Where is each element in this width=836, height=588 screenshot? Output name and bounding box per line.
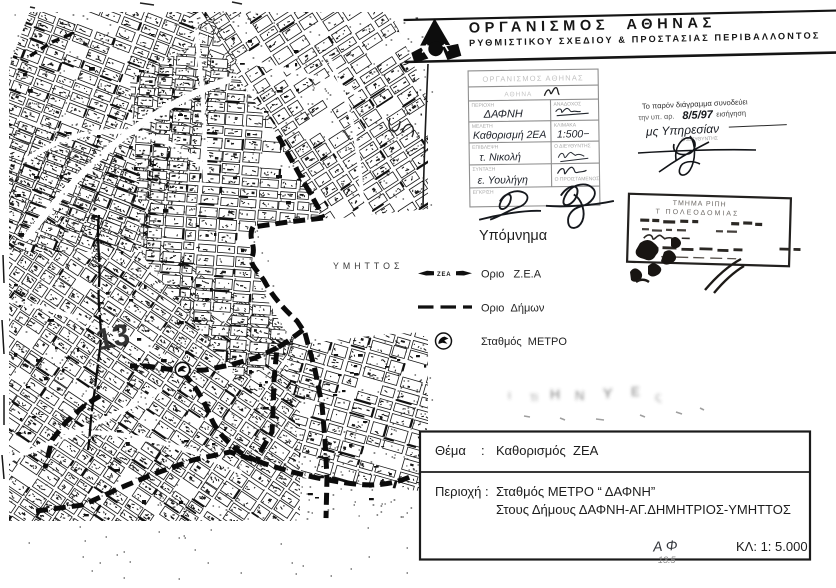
svg-text:ΟΡΓΑΝΙΣΜΟΣ ΑΘΗΝΑΣ: ΟΡΓΑΝΙΣΜΟΣ ΑΘΗΝΑΣ: [482, 73, 583, 83]
svg-text:13: 13: [93, 318, 133, 357]
svg-text:Καθορισμός ΖΕΑ: Καθορισμός ΖΕΑ: [496, 443, 599, 458]
svg-text:Ν: Ν: [575, 388, 584, 403]
svg-text:την υπ. αρ.: την υπ. αρ.: [638, 112, 674, 123]
svg-text:Υπόμνημα: Υπόμνημα: [479, 228, 547, 244]
svg-text:ΥΜΗΤΤΟΣ: ΥΜΗΤΤΟΣ: [333, 261, 403, 271]
svg-text:Σταθμός ΜΕΤΡΟ: Σταθμός ΜΕΤΡΟ: [481, 336, 567, 348]
svg-text:ΕΓΚΡΙΣΗ: ΕΓΚΡΙΣΗ: [473, 190, 494, 196]
svg-text:Οριο Ζ.Ε.Α: Οριο Ζ.Ε.Α: [481, 269, 542, 281]
svg-text:ς: ς: [655, 389, 661, 404]
svg-text:ΕΠΙΒΛΕΨΗ: ΕΠΙΒΛΕΨΗ: [472, 144, 499, 150]
svg-text:ΣΥΝΤΑΞΗ: ΣΥΝΤΑΞΗ: [472, 167, 495, 173]
svg-text:ΔΑΦΝΗ: ΔΑΦΝΗ: [483, 108, 523, 121]
svg-text:ΚΛ: 1: 5.000: ΚΛ: 1: 5.000: [736, 539, 808, 554]
svg-text:ε. Υουλήγη: ε. Υουλήγη: [478, 174, 529, 187]
svg-text:Υ: Υ: [603, 385, 613, 401]
svg-text:Θέμα: Θέμα: [435, 443, 466, 458]
svg-text:Η: Η: [550, 386, 560, 402]
svg-text:ΤΜΗΜΑ ΡΙΠΗ: ΤΜΗΜΑ ΡΙΠΗ: [673, 200, 727, 209]
svg-text:τι: τι: [530, 389, 538, 404]
svg-text:Καθορισμή 2ΕΑ: Καθορισμή 2ΕΑ: [473, 129, 547, 142]
svg-text:Ο ΔΙΕΥΘΥΝΤΗΣ: Ο ΔΙΕΥΘΥΝΤΗΣ: [554, 143, 591, 150]
svg-text:τ. Νικολή: τ. Νικολή: [479, 151, 521, 164]
svg-text:εισήγηση: εισήγηση: [716, 108, 746, 118]
svg-text:Οριο Δήμων: Οριο Δήμων: [481, 303, 545, 315]
svg-text:1:500−: 1:500−: [557, 128, 590, 140]
svg-text:Σταθμός ΜΕΤΡΟ “ ΔΑΦΝΗ”: Σταθμός ΜΕΤΡΟ “ ΔΑΦΝΗ”: [496, 484, 655, 499]
svg-text:ι: ι: [508, 387, 511, 402]
svg-text:Ε: Ε: [631, 384, 640, 399]
svg-text:Α Φ: Α Φ: [652, 537, 679, 555]
svg-text:ΑΝΑΔΟΧΟΣ: ΑΝΑΔΟΧΟΣ: [553, 101, 581, 107]
svg-text:Στους Δήμους ΔΑΦΝΗ-ΑΓ.ΔΗΜΗΤΡΙΟ: Στους Δήμους ΔΑΦΝΗ-ΑΓ.ΔΗΜΗΤΡΙΟΣ-ΥΜΗΤΤΟΣ: [496, 502, 791, 517]
svg-text:Ο ΠΡΟΙΣΤΑΜΕΝΟΣ: Ο ΠΡΟΙΣΤΑΜΕΝΟΣ: [555, 176, 600, 183]
svg-text::: :: [481, 443, 485, 458]
svg-text:Τ ΠΟΛΕΟΔΟΜΙΑΣ: Τ ΠΟΛΕΟΔΟΜΙΑΣ: [655, 209, 739, 218]
svg-text:Ο ΔΙΕΥΘΥΝΤΗΣ: Ο ΔΙΕΥΘΥΝΤΗΣ: [681, 136, 718, 144]
svg-text:8/5/97: 8/5/97: [682, 109, 714, 122]
svg-text:13.5: 13.5: [658, 555, 677, 565]
svg-text:ΑΘΗΝΑ: ΑΘΗΝΑ: [504, 91, 532, 98]
svg-text:Περιοχή :: Περιοχή :: [435, 484, 489, 499]
svg-text:ΖΕΑ: ΖΕΑ: [437, 272, 451, 278]
